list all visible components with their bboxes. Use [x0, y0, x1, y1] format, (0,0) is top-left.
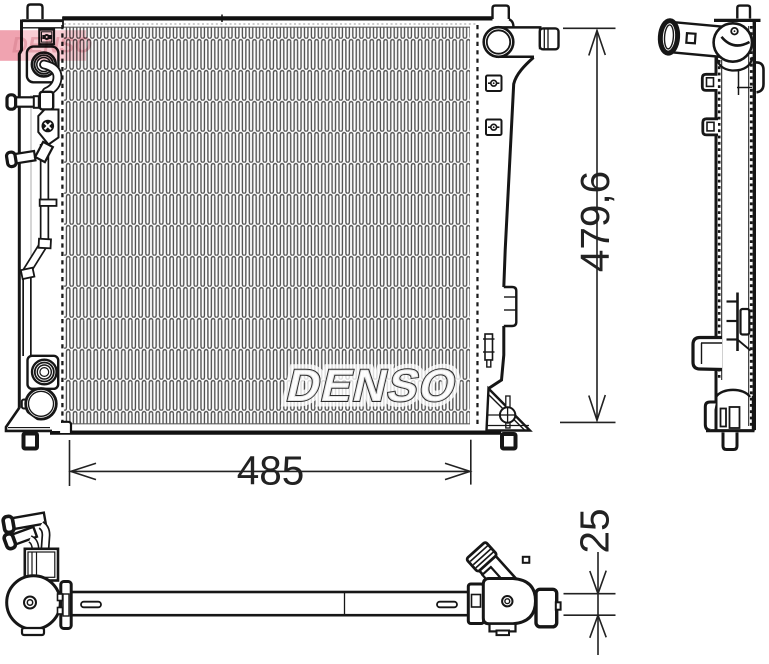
- svg-text:25: 25: [572, 508, 618, 553]
- svg-text:479,6: 479,6: [572, 171, 618, 272]
- svg-text:485: 485: [237, 448, 305, 494]
- svg-text:DENSO: DENSO: [12, 33, 92, 58]
- svg-text:DENSO: DENSO: [282, 360, 463, 411]
